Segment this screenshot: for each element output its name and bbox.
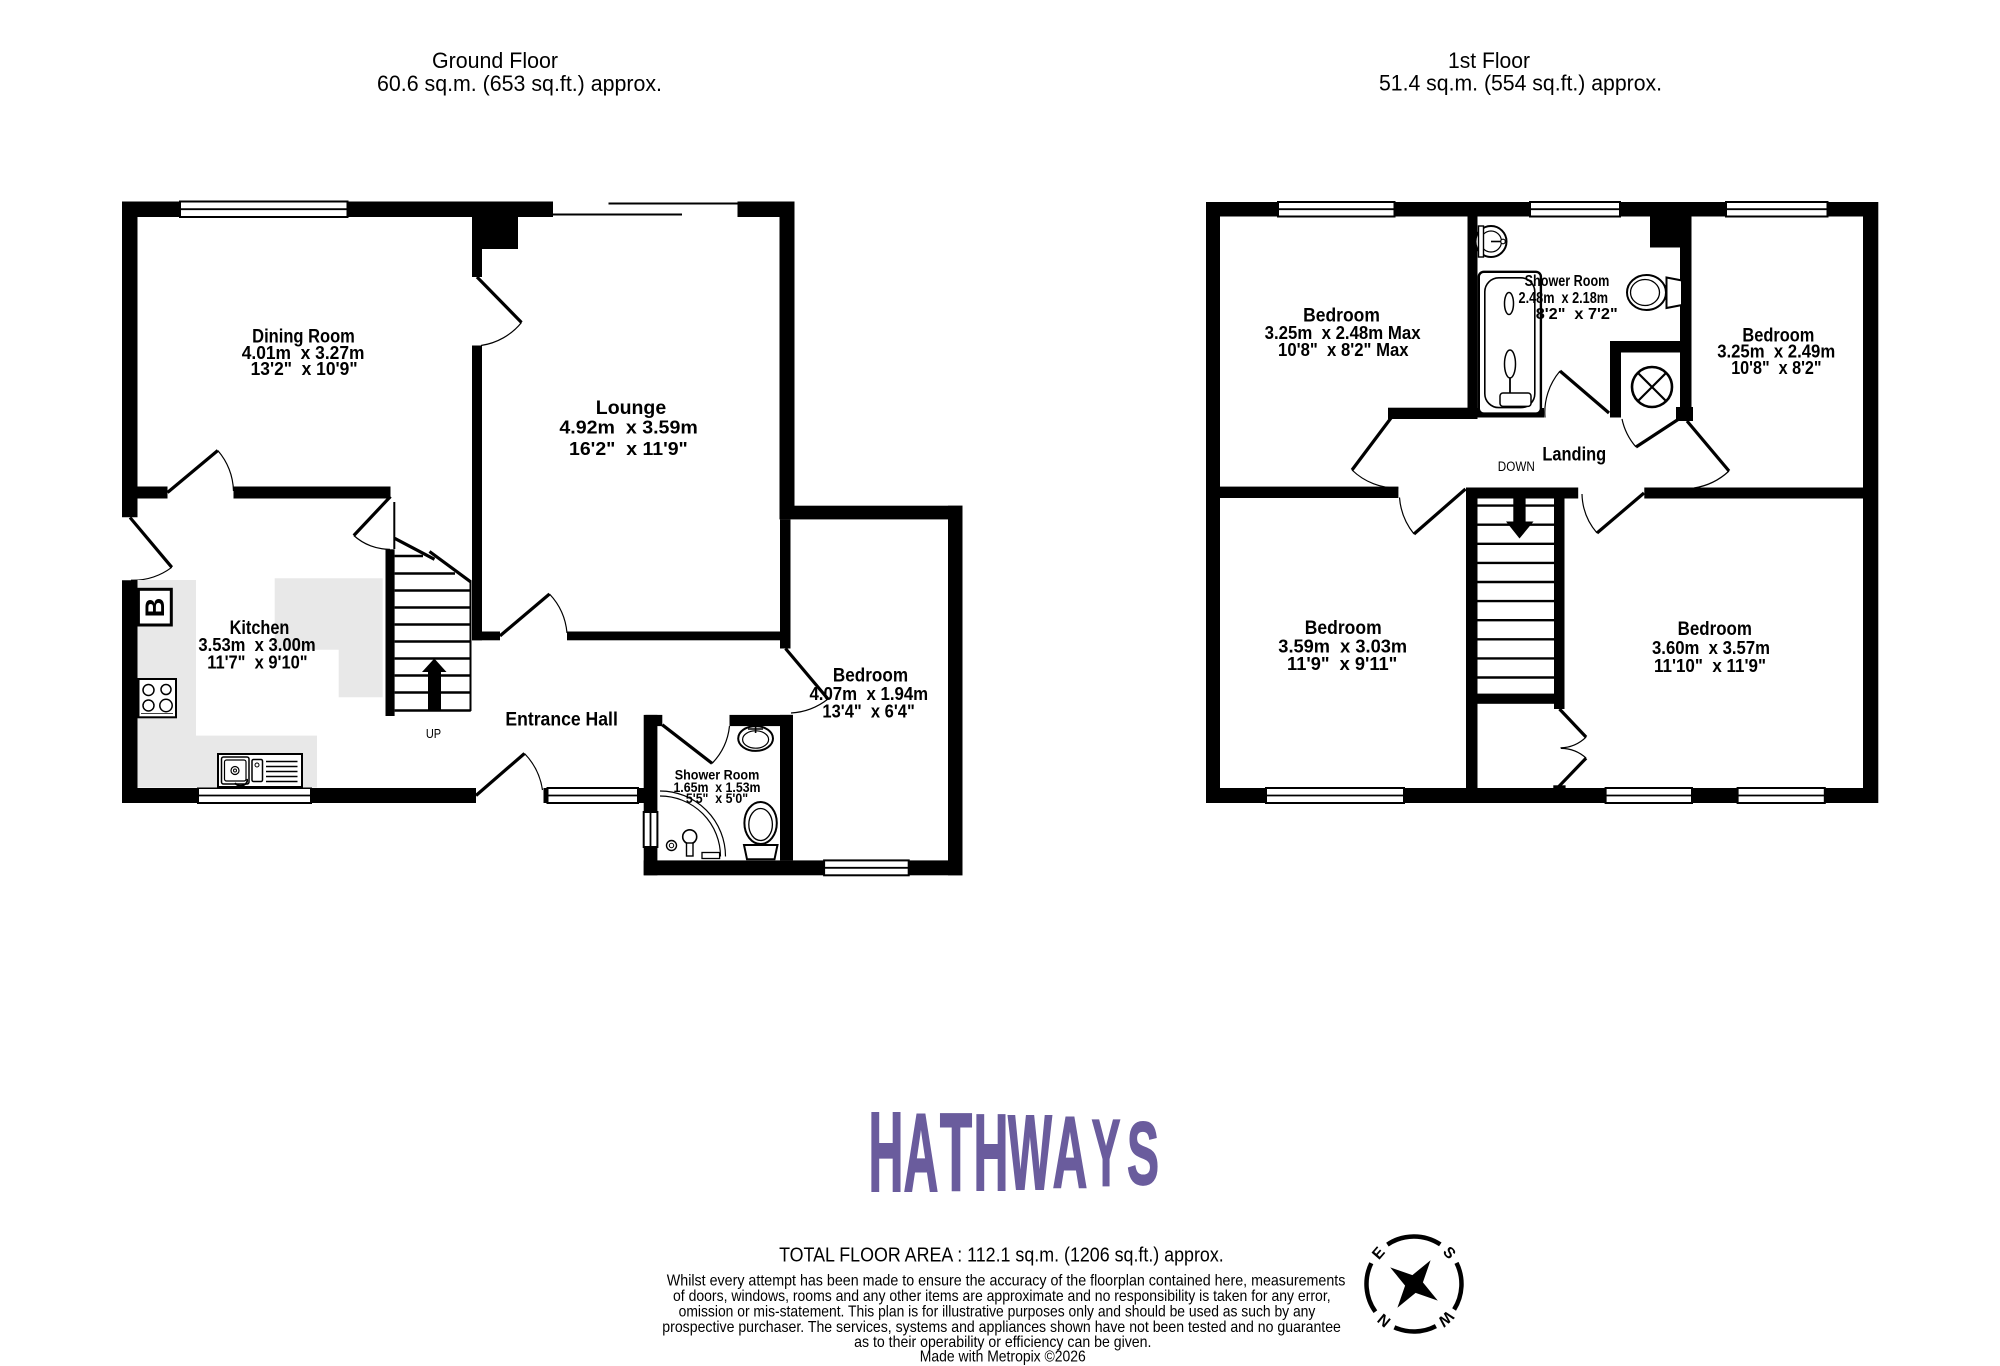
- svg-text:S: S: [1127, 1104, 1159, 1204]
- svg-text:UP: UP: [426, 726, 441, 741]
- svg-text:8'2" x 7'2": 8'2" x 7'2": [1536, 306, 1618, 323]
- svg-text:Ground Floor: Ground Floor: [432, 48, 558, 73]
- svg-text:Made with Metropix ©2026: Made with Metropix ©2026: [920, 1348, 1086, 1365]
- svg-text:TOTAL FLOOR AREA : 112.1 sq.m.: TOTAL FLOOR AREA : 112.1 sq.m. (1206 sq.…: [779, 1245, 1224, 1267]
- svg-text:H: H: [869, 1089, 904, 1215]
- svg-text:5'5" x 5'0": 5'5" x 5'0": [686, 791, 748, 806]
- svg-text:A: A: [1053, 1096, 1088, 1210]
- svg-text:Y: Y: [1092, 1099, 1121, 1206]
- svg-text:A: A: [904, 1091, 939, 1216]
- svg-text:1st Floor: 1st Floor: [1448, 48, 1530, 73]
- svg-text:16'2" x 11'9": 16'2" x 11'9": [569, 438, 688, 459]
- svg-text:H: H: [974, 1092, 1009, 1214]
- svg-text:T: T: [940, 1092, 972, 1214]
- svg-text:11'9" x 9'11": 11'9" x 9'11": [1287, 653, 1397, 674]
- svg-text:11'7" x 9'10": 11'7" x 9'10": [207, 652, 307, 673]
- svg-text:60.6 sq.m. (653 sq.ft.) approx: 60.6 sq.m. (653 sq.ft.) approx.: [377, 71, 662, 96]
- svg-text:51.4 sq.m. (554 sq.ft.) approx: 51.4 sq.m. (554 sq.ft.) approx.: [1379, 71, 1662, 96]
- svg-text:10'8" x 8'2": 10'8" x 8'2": [1731, 357, 1821, 378]
- svg-text:W: W: [1008, 1095, 1052, 1213]
- svg-text:Whilst every attempt has been: Whilst every attempt has been made to en…: [667, 1273, 1346, 1290]
- svg-text:Landing: Landing: [1542, 445, 1606, 466]
- svg-text:11'10" x 11'9": 11'10" x 11'9": [1654, 655, 1766, 676]
- svg-text:Shower Room: Shower Room: [1525, 273, 1610, 290]
- svg-text:B: B: [140, 598, 170, 618]
- svg-text:13'4" x 6'4": 13'4" x 6'4": [822, 700, 914, 721]
- svg-text:10'8" x 8'2" Max: 10'8" x 8'2" Max: [1278, 339, 1409, 360]
- svg-text:DOWN: DOWN: [1498, 459, 1535, 474]
- svg-text:2.48m x 2.18m: 2.48m x 2.18m: [1519, 290, 1609, 307]
- svg-text:omission or mis-statement. Thi: omission or mis-statement. This plan is …: [679, 1303, 1316, 1320]
- svg-text:4.92m x 3.59m: 4.92m x 3.59m: [559, 417, 697, 438]
- svg-text:Entrance Hall: Entrance Hall: [505, 710, 618, 731]
- svg-text:13'2" x 10'9": 13'2" x 10'9": [251, 358, 358, 379]
